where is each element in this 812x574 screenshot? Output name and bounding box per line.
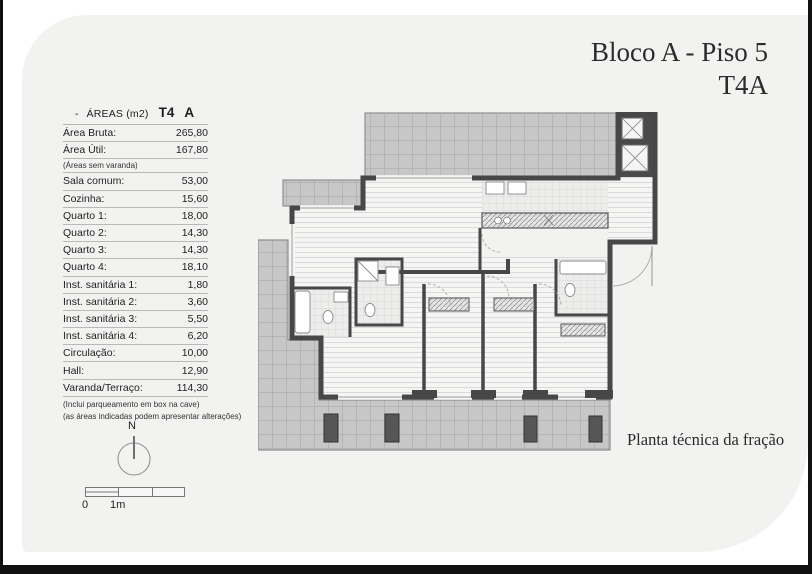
table-row: Sala comum:53,00 — [63, 173, 208, 190]
scan-edge-left — [0, 0, 3, 574]
row-value: 53,00 — [182, 175, 208, 187]
row-label: Circulação: — [63, 347, 116, 359]
row-value: 6,20 — [188, 330, 208, 342]
header-areas-label: ÁREAS (m2) — [87, 108, 149, 120]
row-label: Área Útil: — [63, 144, 106, 156]
table-row: Quarto 4:18,10 — [63, 259, 208, 276]
table-row: Varanda/Terraço:114,30 — [63, 380, 208, 397]
title-block: Bloco A - Piso 5 T4A — [591, 36, 768, 102]
row-label: Varanda/Terraço: — [63, 382, 143, 394]
row-value: 3,60 — [188, 296, 208, 308]
row-label: Inst. sanitária 2: — [63, 296, 137, 308]
row-value: 1,80 — [188, 279, 208, 291]
table-subnote: (Áreas sem varanda) — [63, 159, 208, 173]
row-label: Cozinha: — [63, 193, 104, 205]
row-label: Sala comum: — [63, 175, 124, 187]
row-value: 265,80 — [176, 127, 208, 139]
table-row: Hall:12,90 — [63, 362, 208, 379]
row-value: 12,90 — [182, 365, 208, 377]
row-label: Inst. sanitária 4: — [63, 330, 137, 342]
table-footnotes: (Inclui parqueamento em box na cave) (as… — [63, 400, 208, 421]
row-value: 14,30 — [182, 227, 208, 239]
row-label: Quarto 3: — [63, 244, 107, 256]
table-row: Área Útil:167,80 — [63, 142, 208, 159]
block-floor-title: Bloco A - Piso 5 — [591, 36, 768, 68]
row-label: Quarto 2: — [63, 227, 107, 239]
scale-1m-label: 1m — [110, 499, 125, 511]
table-row: Quarto 1:18,00 — [63, 208, 208, 225]
row-value: 18,10 — [182, 261, 208, 273]
row-value: 167,80 — [176, 144, 208, 156]
row-label: Quarto 4: — [63, 261, 107, 273]
row-label: Quarto 1: — [63, 210, 107, 222]
table-row: Inst. sanitária 4:6,20 — [63, 328, 208, 345]
row-value: 10,00 — [182, 347, 208, 359]
header-dash: - — [75, 108, 79, 120]
compass-icon — [102, 420, 172, 480]
north-label: N — [128, 420, 136, 432]
table-row: Área Bruta:265,80 — [63, 125, 208, 142]
row-value: 5,50 — [188, 313, 208, 325]
row-value: 15,60 — [182, 193, 208, 205]
scale-bar-graphic — [80, 485, 200, 499]
row-value: 14,30 — [182, 244, 208, 256]
areas-table-header: - ÁREAS (m2) T4 A — [63, 102, 208, 125]
north-compass: N — [102, 420, 172, 480]
scale-bar: 0 1m — [80, 485, 200, 515]
table-row: Cozinha:15,60 — [63, 191, 208, 208]
table-row: Quarto 2:14,30 — [63, 225, 208, 242]
row-value: 18,00 — [182, 210, 208, 222]
row-label: Área Bruta: — [63, 127, 116, 139]
table-row: Inst. sanitária 3:5,50 — [63, 311, 208, 328]
table-row: Inst. sanitária 2:3,60 — [63, 294, 208, 311]
header-fraction: A — [184, 105, 194, 120]
footnote: (Inclui parqueamento em box na cave) — [63, 400, 208, 409]
table-row: Circulação:10,00 — [63, 345, 208, 362]
scale-zero-label: 0 — [82, 499, 88, 511]
row-label: Inst. sanitária 1: — [63, 279, 137, 291]
scan-edge-right — [808, 0, 812, 574]
row-value: 114,30 — [177, 382, 208, 394]
row-label: Inst. sanitária 3: — [63, 313, 137, 325]
row-label: Hall: — [63, 365, 84, 377]
service-shafts — [618, 113, 655, 177]
header-typology: T4 — [159, 105, 175, 120]
floor-plan-drawing — [258, 112, 668, 454]
scan-edge-bottom — [0, 565, 812, 574]
floor-plan — [258, 112, 668, 454]
unit-type-title: T4A — [591, 68, 768, 102]
table-row: Quarto 3:14,30 — [63, 242, 208, 259]
table-row: Inst. sanitária 1:1,80 — [63, 277, 208, 294]
areas-table: - ÁREAS (m2) T4 A Área Bruta:265,80 Área… — [63, 102, 208, 421]
